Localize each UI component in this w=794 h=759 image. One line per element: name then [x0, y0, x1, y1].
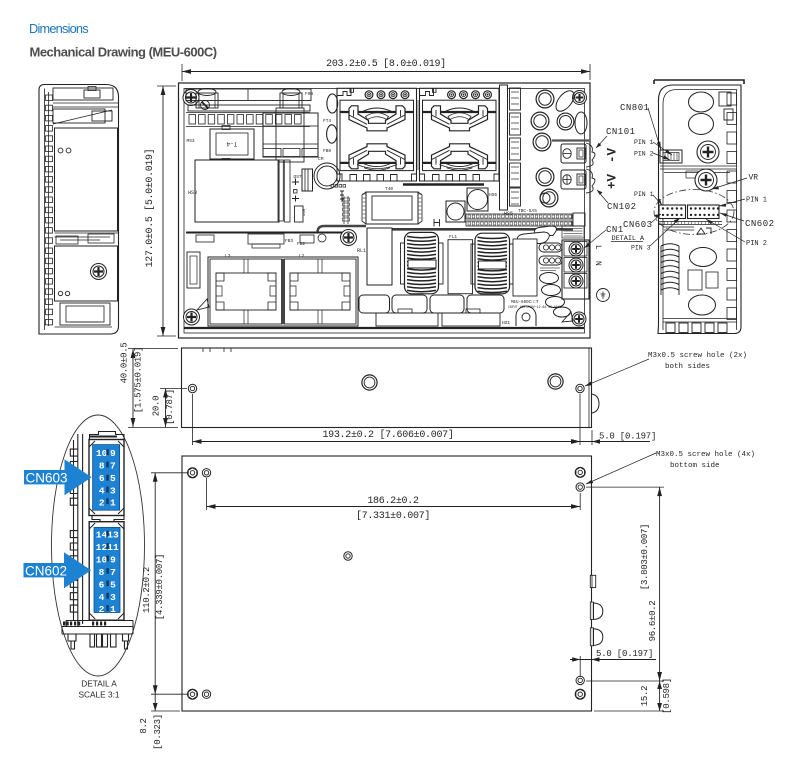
- svg-text:SCALE 3:1: SCALE 3:1: [78, 690, 119, 700]
- svg-text:15.2: 15.2: [640, 686, 650, 706]
- svg-text:-V: -V: [606, 148, 620, 164]
- svg-text:PIN 2: PIN 2: [634, 151, 654, 158]
- svg-text:RL1: RL1: [357, 248, 366, 254]
- svg-text:QS7: QS7: [294, 174, 302, 180]
- svg-text:4: 4: [99, 592, 105, 603]
- svg-text:CN602: CN602: [745, 219, 775, 229]
- svg-text:10: 10: [96, 555, 108, 566]
- svg-text:T40: T40: [385, 186, 393, 192]
- svg-text:MS3: MS3: [187, 138, 195, 144]
- svg-text:F0B: F0B: [305, 91, 313, 97]
- svg-text:HS6: HS6: [489, 192, 497, 198]
- svg-text:127.0±0.5 [5.0±0.019]: 127.0±0.5 [5.0±0.019]: [144, 149, 156, 268]
- svg-text:L2: L2: [299, 253, 305, 259]
- svg-text:M3x0.5 screw hole (4x): M3x0.5 screw hole (4x): [656, 451, 755, 459]
- svg-text:[4.339±0.007]: [4.339±0.007]: [155, 554, 165, 620]
- svg-text:FB3: FB3: [285, 238, 293, 244]
- svg-text:1: 1: [110, 498, 116, 509]
- svg-text:CN102: CN102: [607, 202, 637, 212]
- svg-text:7: 7: [110, 461, 116, 472]
- svg-text:Mechanical Drawing (MEU-600C): Mechanical Drawing (MEU-600C): [30, 45, 217, 60]
- svg-text:5.0 [0.197]: 5.0 [0.197]: [599, 432, 656, 442]
- svg-text:10: 10: [96, 448, 108, 459]
- svg-text:2: 2: [99, 498, 105, 509]
- svg-text:2: 2: [99, 604, 105, 615]
- svg-text:12: 12: [96, 542, 108, 553]
- svg-text:PIN 1: PIN 1: [634, 191, 654, 198]
- svg-text:Dimensions: Dimensions: [29, 21, 88, 36]
- svg-text:8.2: 8.2: [139, 718, 149, 733]
- svg-text:N: N: [593, 261, 602, 266]
- svg-text:6: 6: [99, 473, 105, 484]
- svg-text:6: 6: [99, 579, 105, 590]
- svg-text:CN603: CN603: [26, 471, 68, 486]
- svg-text:3: 3: [110, 485, 116, 496]
- svg-text:3: 3: [110, 592, 116, 603]
- svg-text:13: 13: [107, 530, 119, 541]
- svg-text:+V: +V: [606, 174, 620, 190]
- svg-text:9: 9: [110, 555, 116, 566]
- svg-text:PIN 3: PIN 3: [631, 245, 651, 252]
- svg-text:L: L: [593, 245, 602, 250]
- svg-text:[0.598]: [0.598]: [662, 678, 672, 714]
- svg-text:both sides: both sides: [665, 363, 710, 371]
- svg-text:FL1: FL1: [449, 234, 457, 240]
- svg-text:HS3: HS3: [188, 190, 197, 196]
- svg-text:HS1: HS1: [502, 320, 510, 326]
- svg-text:193.2±0.2 [7.606±0.007]: 193.2±0.2 [7.606±0.007]: [322, 429, 453, 441]
- svg-text:L3: L3: [225, 253, 231, 259]
- svg-text:VR: VR: [749, 174, 759, 183]
- svg-text:4: 4: [99, 485, 105, 496]
- svg-text:FB2: FB2: [297, 241, 305, 247]
- svg-text:CN1: CN1: [606, 225, 624, 235]
- svg-text:INPUT 100-240V~12-6A 50-60Hz: INPUT 100-240V~12-6A 50-60Hz: [508, 305, 562, 309]
- svg-text:CN101: CN101: [606, 127, 636, 137]
- svg-text:PIN 1: PIN 1: [746, 197, 767, 205]
- svg-text:FT4: FT4: [323, 118, 331, 124]
- svg-text:T-4: T-4: [226, 140, 237, 147]
- svg-text:[0.323]: [0.323]: [153, 714, 163, 750]
- svg-text:9: 9: [110, 448, 116, 459]
- svg-text:8: 8: [99, 567, 105, 578]
- svg-text:203.2±0.5 [8.0±0.019]: 203.2±0.5 [8.0±0.019]: [326, 58, 446, 70]
- svg-text:FB9: FB9: [323, 148, 331, 154]
- svg-text:186.2±0.2: 186.2±0.2: [367, 496, 419, 507]
- svg-text:CN602: CN602: [25, 564, 67, 579]
- svg-text:PIN 2: PIN 2: [746, 240, 767, 248]
- svg-text:DETAIL A: DETAIL A: [81, 679, 117, 689]
- svg-text:CN801: CN801: [620, 103, 650, 113]
- svg-text:5: 5: [110, 473, 116, 484]
- svg-text:96.6±0.2: 96.6±0.2: [648, 601, 658, 642]
- svg-text:bottom side: bottom side: [670, 462, 720, 470]
- svg-text:20.0: 20.0: [152, 396, 162, 416]
- svg-text:[3.803±0.007]: [3.803±0.007]: [640, 524, 650, 590]
- svg-text:D4B: D4B: [303, 208, 307, 216]
- svg-text:CN603: CN603: [623, 220, 653, 230]
- svg-text:11: 11: [107, 542, 119, 553]
- svg-text:5: 5: [110, 579, 116, 590]
- svg-text:[7.331±0.007]: [7.331±0.007]: [356, 510, 430, 522]
- svg-text:8: 8: [99, 461, 105, 472]
- svg-text:1: 1: [110, 604, 116, 615]
- svg-text:M3x0.5 screw hole (2x): M3x0.5 screw hole (2x): [648, 352, 747, 360]
- svg-text:TBC-5A5: TBC-5A5: [518, 208, 537, 214]
- svg-text:7: 7: [110, 567, 116, 578]
- svg-text:CM: CM: [318, 156, 324, 162]
- svg-text:5.0 [0.197]: 5.0 [0.197]: [596, 649, 653, 659]
- svg-text:14: 14: [96, 530, 108, 541]
- svg-text:PIN 1: PIN 1: [634, 139, 654, 146]
